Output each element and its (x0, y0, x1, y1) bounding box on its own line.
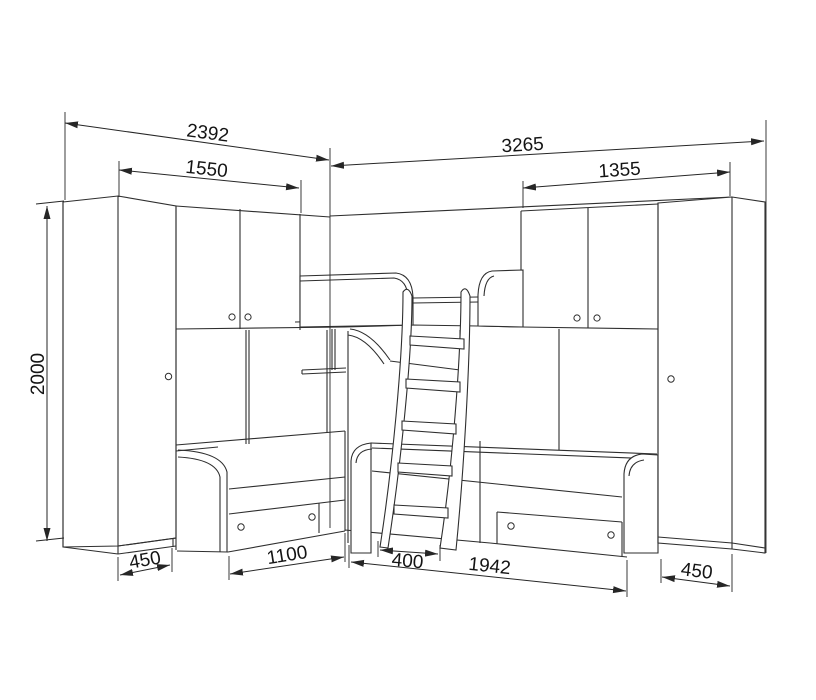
dim-label: 1942 (467, 554, 511, 579)
dim-label: 450 (680, 559, 714, 584)
ladder-step (402, 421, 456, 434)
bunk-ladder (380, 289, 470, 550)
right-wardrobe (658, 197, 765, 553)
dim-unit-height: 2000 (28, 201, 64, 541)
furniture-dimension-drawing: 2392 1550 3265 1355 2000 450 1100 400 (0, 0, 816, 700)
dim-label: 2392 (185, 120, 230, 146)
drawer-handle (508, 523, 514, 529)
wardrobe-door-handle (165, 373, 171, 379)
drawer-handle (309, 514, 315, 520)
cabinet-door-handle (229, 314, 235, 320)
technical-drawing-canvas: 2392 1550 3265 1355 2000 450 1100 400 (0, 0, 816, 700)
ladder-step (406, 379, 460, 392)
drawer-handle (238, 524, 244, 530)
cabinet-door-handle (245, 314, 251, 320)
left-wardrobe (63, 196, 176, 554)
bunk-headboard-right (478, 270, 523, 327)
dim-label: 450 (128, 547, 163, 573)
ladder-step (410, 336, 464, 349)
bunk-headboard-left (300, 273, 413, 327)
dim-left-bed-length: 1100 (229, 533, 345, 580)
dim-label: 400 (391, 550, 424, 574)
right-overhead-cabinet (521, 204, 658, 329)
dim-label: 1100 (265, 542, 309, 569)
cabinet-door-handle (594, 315, 600, 321)
left-bed (176, 431, 345, 552)
dim-label: 1550 (184, 157, 228, 182)
cabinet-door-handle (574, 315, 580, 321)
dim-label: 2000 (28, 353, 49, 395)
wardrobe-door-handle (668, 376, 674, 382)
ladder-step (394, 505, 448, 518)
dim-label: 3265 (501, 134, 544, 157)
drawer-handle (608, 532, 614, 538)
dim-right-wardrobe-depth: 450 (661, 554, 732, 592)
dim-label: 1355 (598, 159, 642, 183)
